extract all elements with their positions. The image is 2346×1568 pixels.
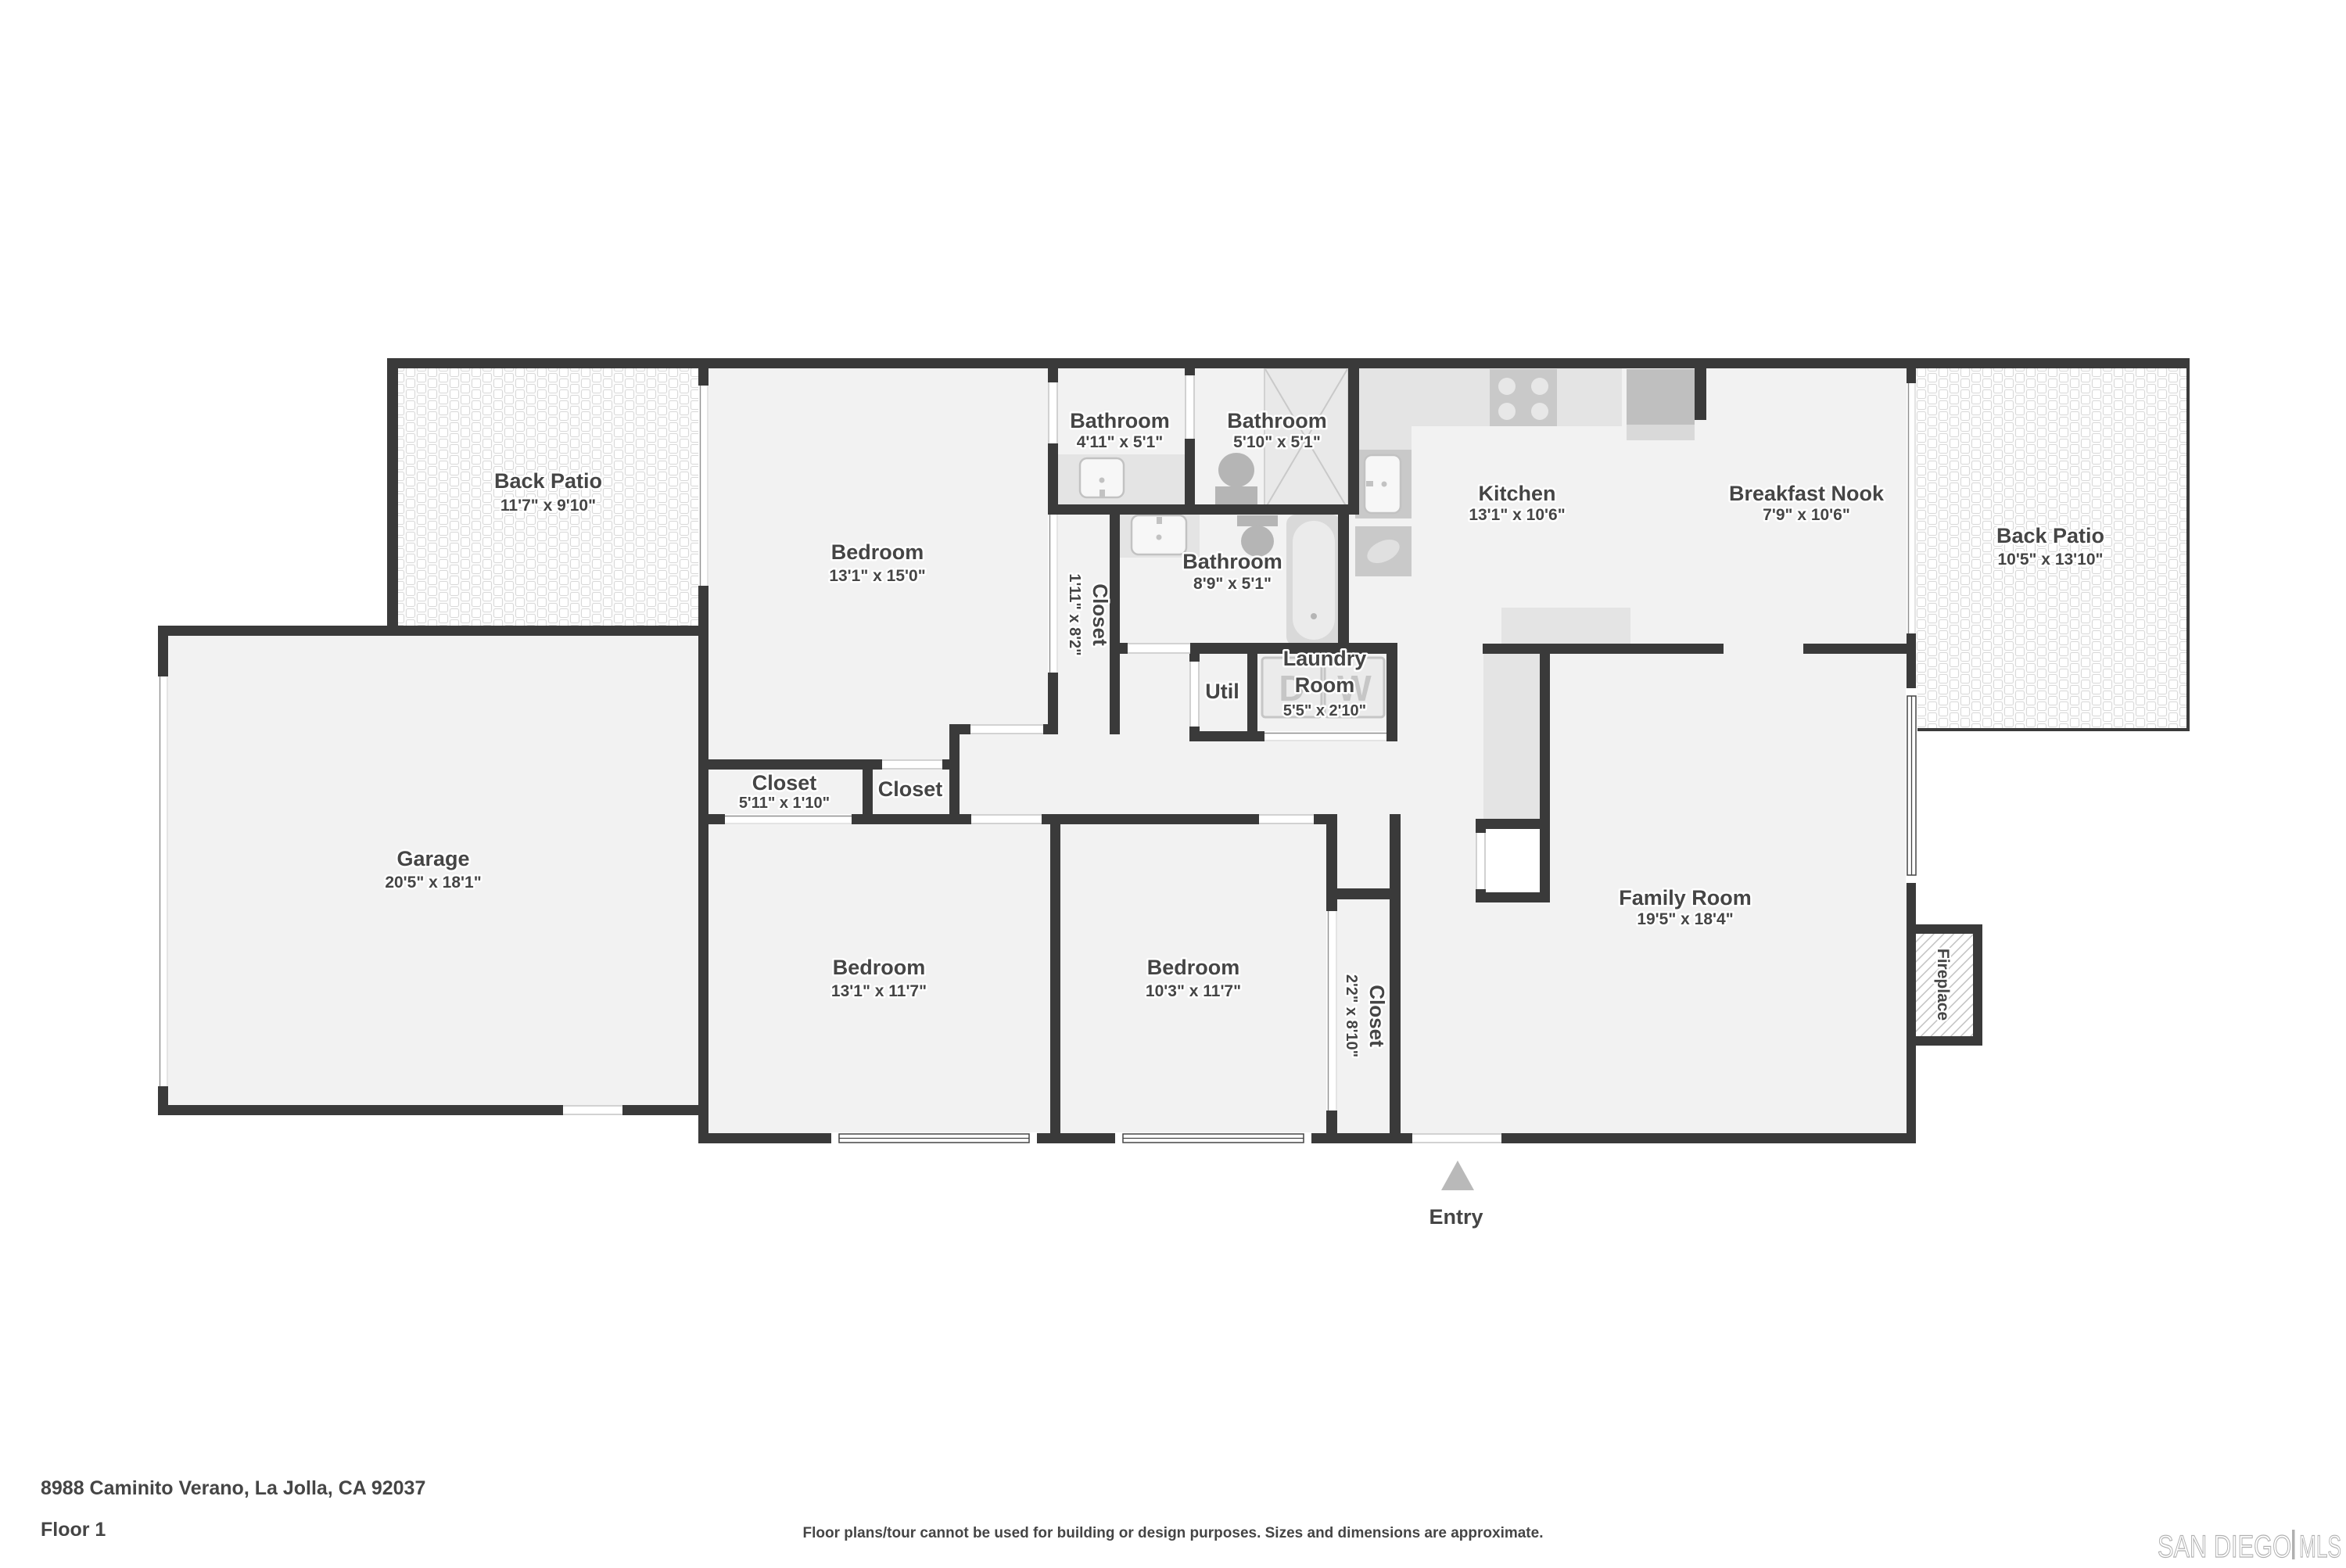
svg-text:Bathroom: Bathroom	[1227, 409, 1327, 432]
svg-text:5'11" x 1'10": 5'11" x 1'10"	[739, 795, 830, 812]
svg-text:Room: Room	[1295, 673, 1355, 697]
svg-text:8'9" x 5'1": 8'9" x 5'1"	[1193, 575, 1272, 593]
svg-text:13'1" x 10'6": 13'1" x 10'6"	[1469, 506, 1565, 524]
svg-text:7'9" x 10'6": 7'9" x 10'6"	[1763, 506, 1850, 524]
svg-text:Breakfast Nook: Breakfast Nook	[1729, 482, 1885, 505]
svg-text:5'5" x 2'10": 5'5" x 2'10"	[1283, 702, 1366, 719]
svg-text:Bedroom: Bedroom	[833, 956, 926, 979]
svg-text:11'7" x 9'10": 11'7" x 9'10"	[500, 497, 596, 515]
svg-text:Closet: Closet	[1365, 985, 1389, 1047]
svg-text:13'1" x 15'0": 13'1" x 15'0"	[829, 567, 925, 585]
svg-text:1'11" x 8'2": 1'11" x 8'2"	[1066, 573, 1083, 655]
svg-text:4'11" x 5'1": 4'11" x 5'1"	[1077, 433, 1164, 451]
svg-text:13'1" x 11'7": 13'1" x 11'7"	[831, 982, 927, 1000]
svg-text:10'3" x 11'7": 10'3" x 11'7"	[1146, 982, 1241, 1000]
svg-text:MLS: MLS	[2299, 1530, 2341, 1564]
svg-text:Util: Util	[1205, 680, 1239, 703]
svg-text:19'5" x 18'4": 19'5" x 18'4"	[1637, 910, 1733, 928]
svg-text:Floor plans/tour cannot be use: Floor plans/tour cannot be used for buil…	[803, 1525, 1544, 1541]
svg-text:2'2" x 8'10": 2'2" x 8'10"	[1343, 974, 1360, 1057]
svg-text:Garage: Garage	[396, 847, 469, 870]
svg-text:Back Patio: Back Patio	[1996, 524, 2104, 547]
svg-text:Bathroom: Bathroom	[1182, 550, 1282, 573]
svg-text:Bedroom: Bedroom	[831, 540, 924, 564]
svg-text:8988 Caminito Verano, La Jolla: 8988 Caminito Verano, La Jolla, CA 92037	[41, 1477, 425, 1499]
svg-text:Floor 1: Floor 1	[41, 1519, 106, 1541]
svg-text:Closet: Closet	[752, 771, 817, 795]
svg-text:Fireplace: Fireplace	[1934, 949, 1952, 1021]
svg-text:Kitchen: Kitchen	[1478, 482, 1555, 505]
svg-text:Bedroom: Bedroom	[1147, 956, 1240, 979]
svg-text:Family Room: Family Room	[1619, 886, 1752, 910]
svg-text:Entry: Entry	[1429, 1205, 1483, 1229]
svg-text:Closet: Closet	[878, 777, 943, 801]
svg-text:Laundry: Laundry	[1283, 647, 1367, 670]
svg-text:Closet: Closet	[1089, 583, 1112, 646]
svg-text:SAN DIEGO: SAN DIEGO	[2158, 1530, 2291, 1564]
svg-text:10'5" x 13'10": 10'5" x 13'10"	[1997, 551, 2103, 569]
svg-text:Bathroom: Bathroom	[1070, 409, 1170, 432]
svg-text:Back Patio: Back Patio	[494, 469, 602, 493]
svg-text:5'10" x 5'1": 5'10" x 5'1"	[1233, 433, 1321, 451]
svg-text:20'5" x 18'1": 20'5" x 18'1"	[385, 874, 481, 892]
